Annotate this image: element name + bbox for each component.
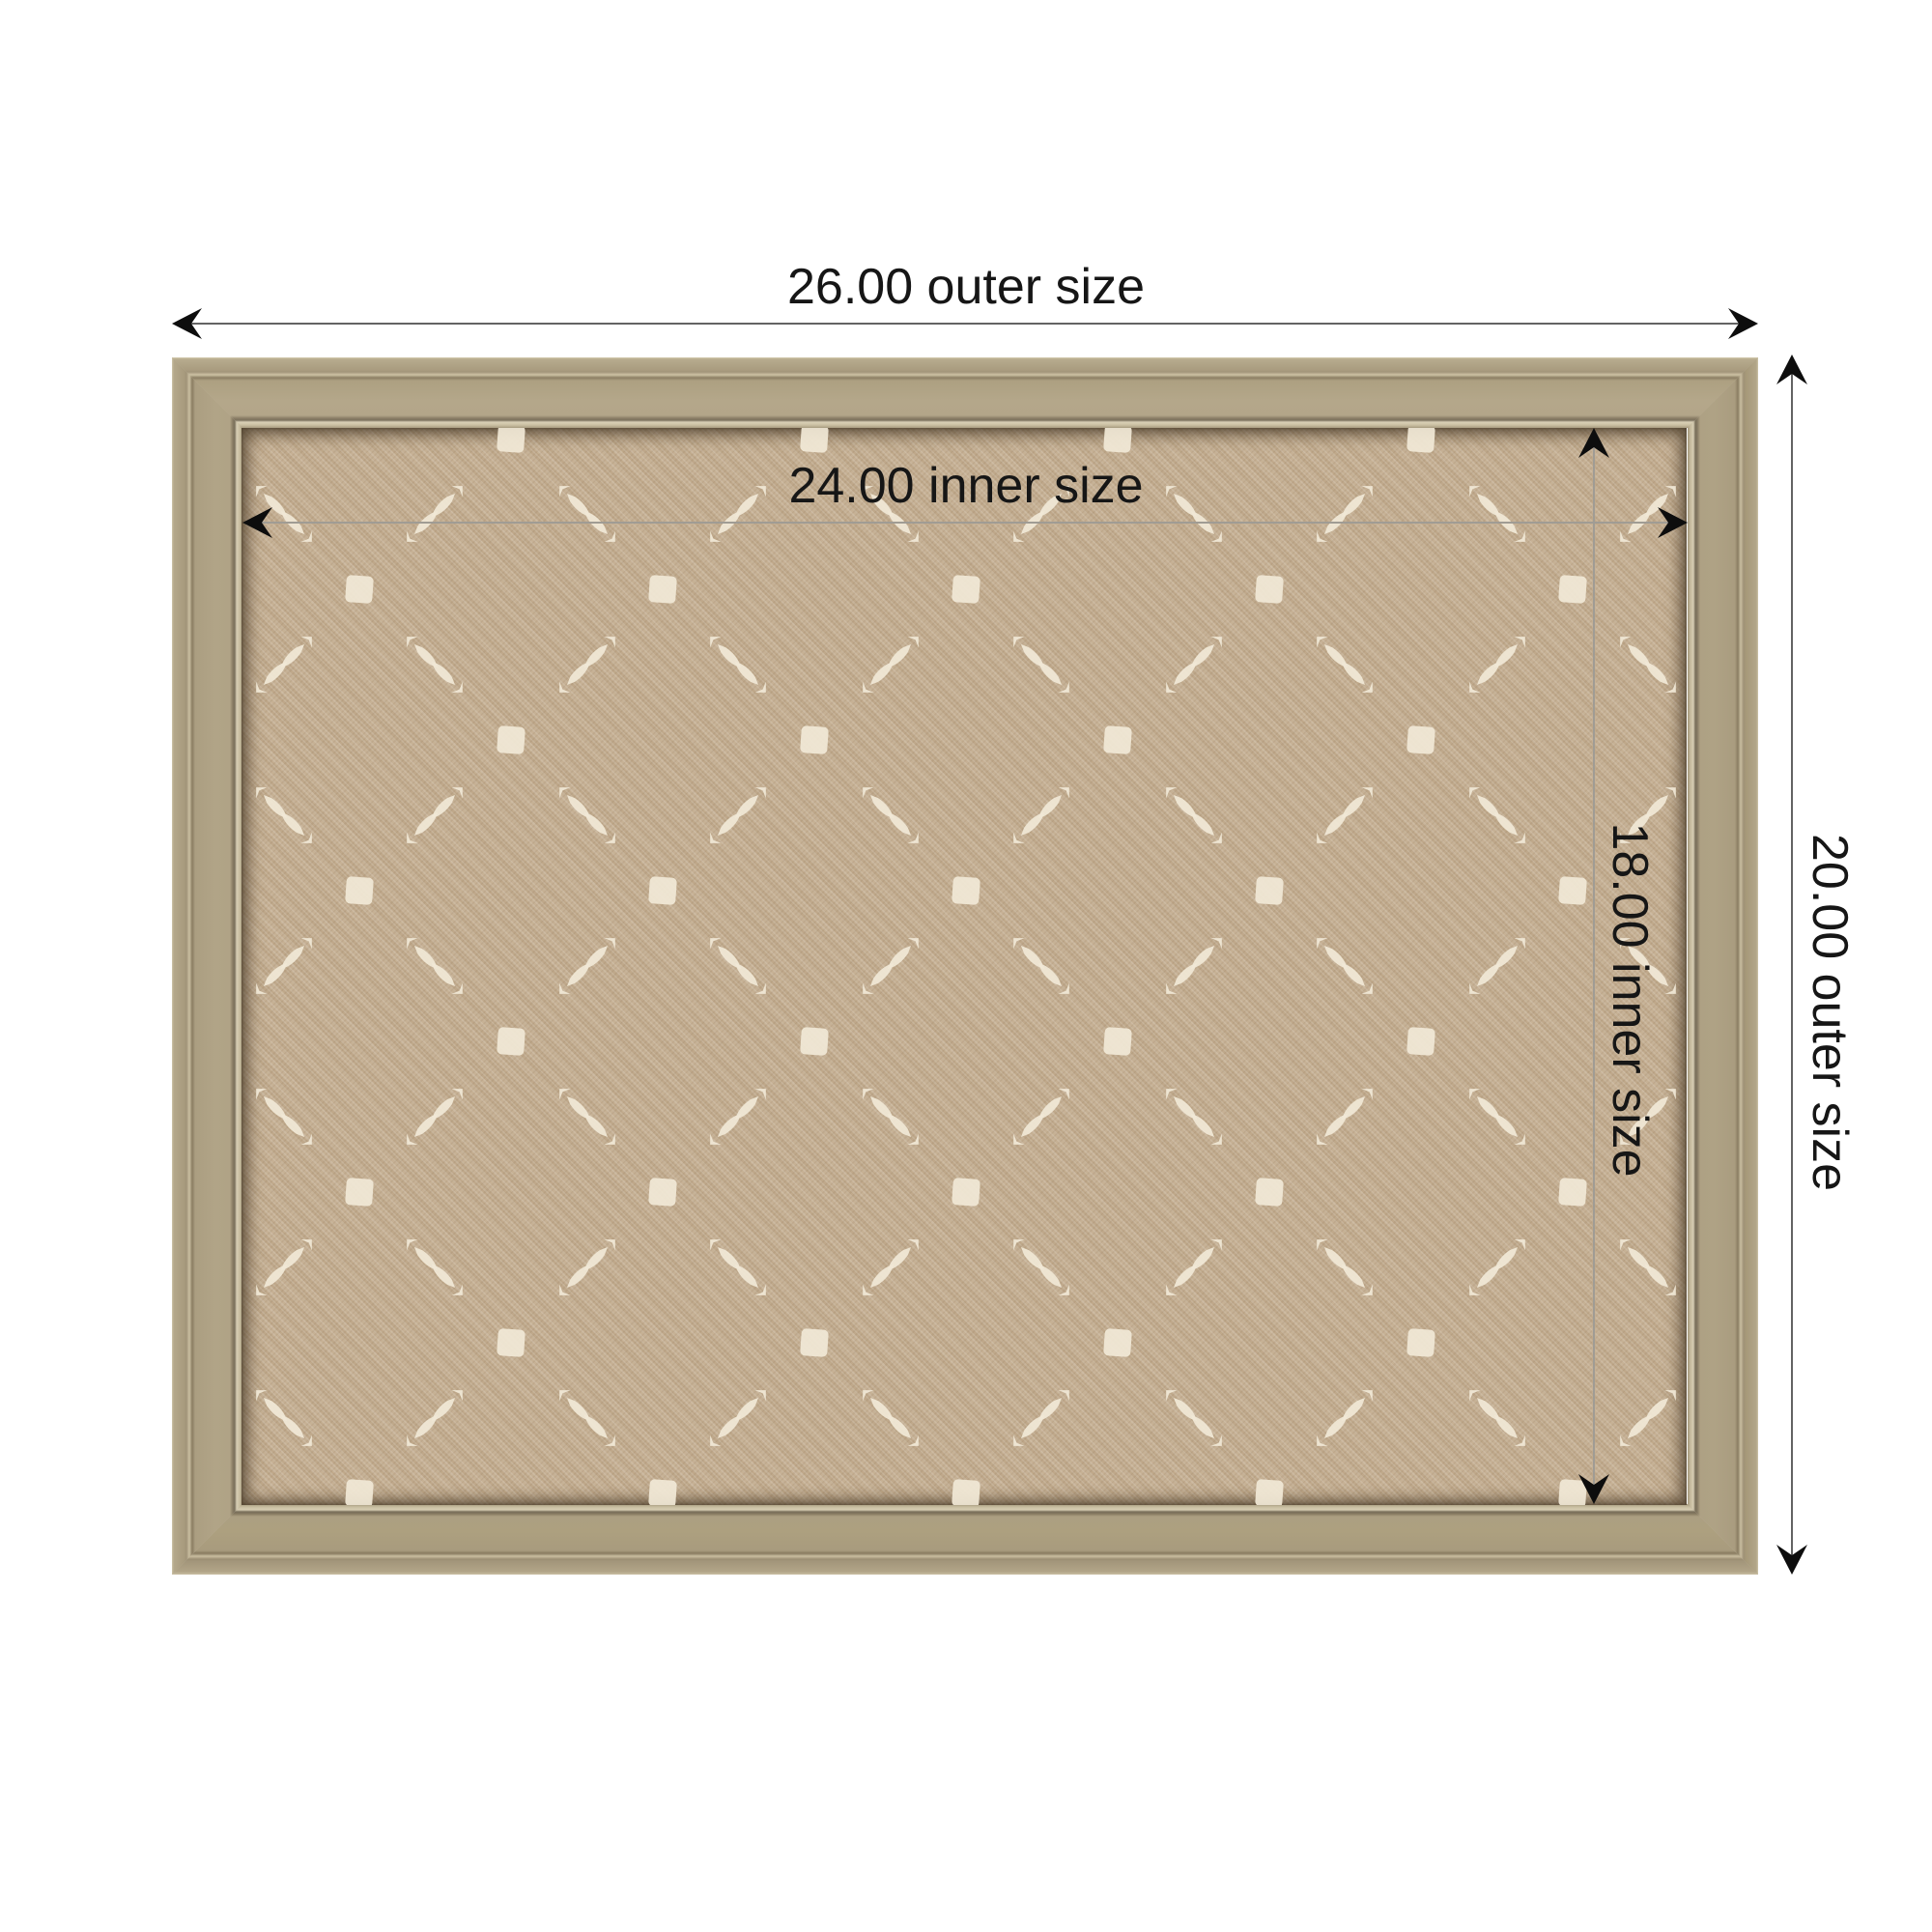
frame-side-left <box>172 357 242 1575</box>
frame-side-right <box>1688 357 1758 1575</box>
linen-board <box>241 428 1687 1505</box>
inner-width-label: 24.00 inner size <box>788 458 1143 516</box>
frame-side-top <box>172 357 1758 428</box>
diamond-lattice-pattern <box>241 428 1687 1505</box>
dimension-diagram: 26.00 outer size 20.00 outer size 24.00 … <box>0 0 1932 1932</box>
inner-height-label: 18.00 inner size <box>1600 822 1658 1177</box>
frame-side-bottom <box>172 1504 1758 1575</box>
outer-height-label: 20.00 outer size <box>1800 834 1858 1191</box>
outer-width-label: 26.00 outer size <box>787 259 1145 317</box>
